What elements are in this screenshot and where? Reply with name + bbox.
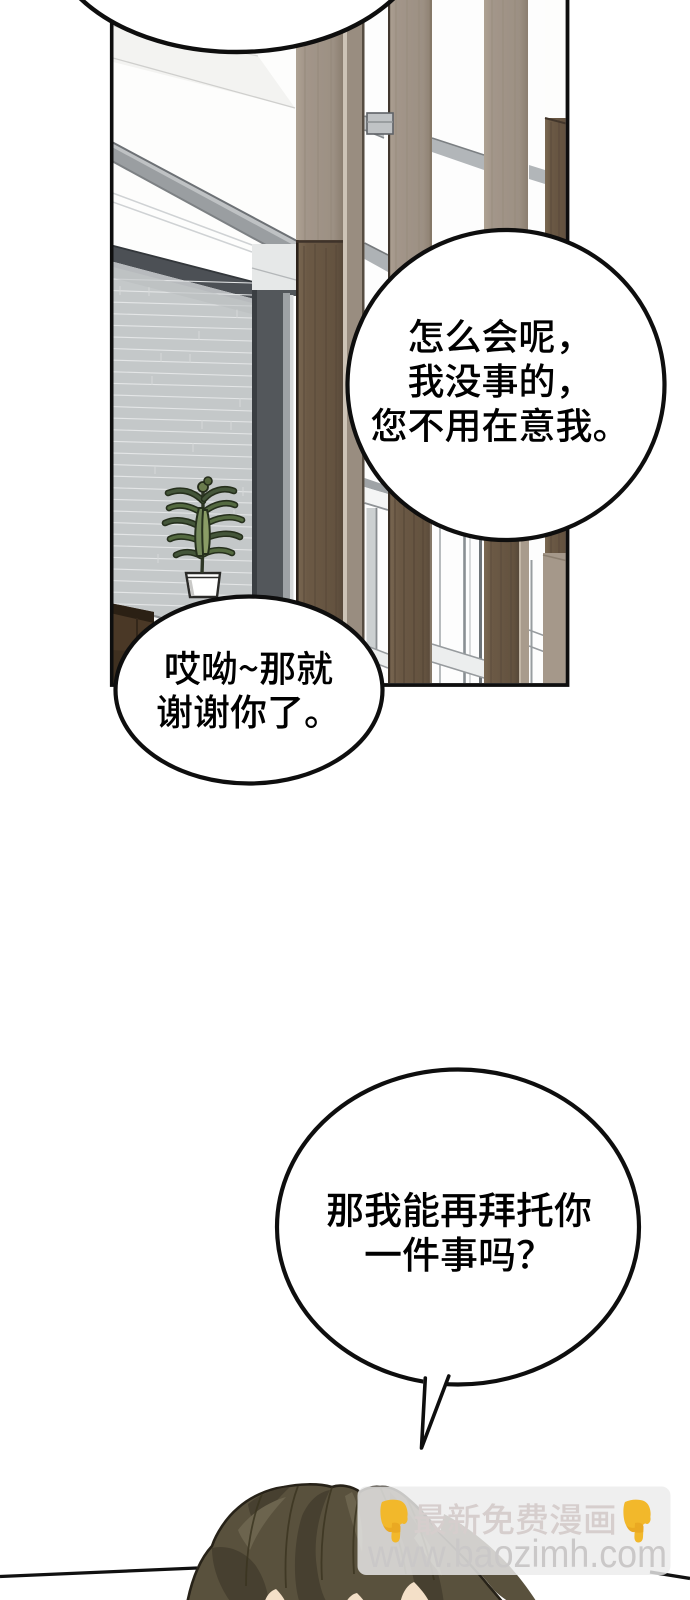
svg-text:www.baozimh.com: www.baozimh.com: [367, 1533, 667, 1576]
